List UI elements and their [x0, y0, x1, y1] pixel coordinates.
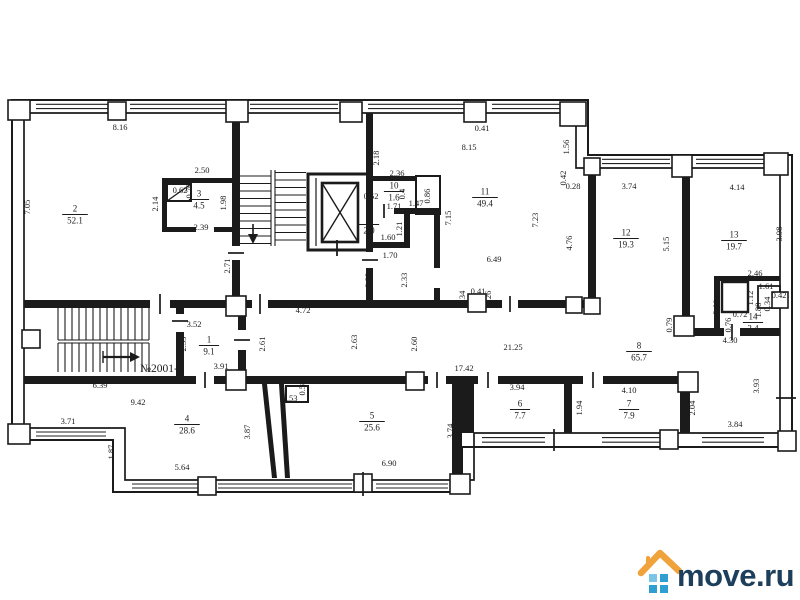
dim-label: 3.93 — [751, 379, 761, 394]
dim-label: 7.15 — [443, 211, 453, 226]
room-area: 19.3 — [618, 240, 634, 250]
room-number: 4 — [185, 414, 190, 424]
dim-label: 9.42 — [131, 397, 146, 407]
dim-label: 4.72 — [296, 305, 311, 315]
room-number: 11 — [481, 187, 490, 197]
dim-label: 4.76 — [564, 236, 574, 251]
dim-label: 2.63 — [349, 335, 359, 350]
dim-label: 2.14 — [150, 196, 160, 212]
dim-label: 0.76 — [723, 318, 733, 333]
floor-plan-page: №2001-2 19.1252.134.5428.6525.667.777.98… — [0, 0, 800, 600]
dim-label: 0.70 — [184, 184, 194, 199]
unit-number-label: №2001-2 — [140, 363, 184, 375]
room-number: 6 — [518, 399, 523, 409]
room-number: 8 — [637, 341, 642, 351]
dim-label: 0.41 — [475, 123, 490, 133]
dim-label: 21.25 — [503, 342, 522, 352]
dim-label: 1.21 — [394, 222, 404, 237]
room-area: 28.6 — [179, 426, 195, 436]
dim-label: 3.71 — [61, 416, 76, 426]
room-number: 5 — [370, 411, 375, 421]
room-area: 19.7 — [726, 242, 742, 252]
dim-label: 1.87 — [106, 445, 116, 460]
room-area: 49.4 — [477, 199, 493, 209]
dim-label: 8.16 — [113, 122, 128, 132]
dim-label: 0.28 — [566, 181, 581, 191]
dim-label: 1.98 — [218, 196, 228, 211]
dim-label: 4.10 — [622, 385, 637, 395]
dim-label: 6.39 — [93, 380, 108, 390]
dim-label: 3.87 — [242, 425, 252, 440]
dim-label: 7.23 — [530, 213, 540, 228]
room-area: 7.7 — [514, 411, 526, 421]
dim-label: 6.49 — [487, 254, 502, 264]
dim-label: 3.84 — [728, 419, 744, 429]
dim-label: 1.60 — [381, 232, 396, 242]
dim-label: 8.15 — [462, 142, 477, 152]
room-area: 65.7 — [631, 353, 647, 363]
dim-label: 5.64 — [175, 462, 191, 472]
dim-label: 0.58 — [297, 381, 307, 396]
dim-label: 2.32 — [363, 273, 373, 288]
room-area: 4.5 — [193, 201, 205, 211]
room-number: 2 — [73, 204, 78, 214]
dim-label: 3.98 — [774, 227, 784, 242]
dim-label: 0.53 — [283, 393, 298, 403]
room-area: 25.6 — [364, 423, 380, 433]
dim-label: 17.42 — [454, 363, 473, 373]
dim-label: 0.72 — [733, 309, 748, 319]
dim-label: 2.60 — [409, 337, 419, 352]
dim-label: 1.71 — [387, 201, 402, 211]
dim-label: 2.18 — [371, 151, 381, 166]
dim-label: 0.86 — [422, 189, 432, 204]
dim-label: 1.56 — [561, 140, 571, 155]
room-number: 1 — [207, 335, 212, 345]
dim-label: 2.04 — [687, 400, 697, 416]
dim-label: 2.53 — [178, 337, 188, 352]
room-number: 12 — [622, 228, 631, 238]
room-area: 7.9 — [623, 411, 635, 421]
dim-label: 1.70 — [383, 250, 398, 260]
dim-label: 2.00 — [711, 300, 721, 315]
room-area: 52.1 — [67, 216, 83, 226]
dim-label: 2.39 — [194, 222, 209, 232]
dim-label: 2.33 — [399, 273, 409, 288]
dim-label: 2.50 — [195, 165, 210, 175]
dim-label: 4.30 — [723, 335, 738, 345]
dim-label: 3.74 — [445, 423, 455, 439]
dim-label: 5.15 — [661, 237, 671, 252]
dim-label: 1.96 — [462, 399, 472, 414]
dim-label: 2.36 — [390, 168, 405, 178]
room-area: 2.0 — [363, 226, 375, 236]
dim-label: 6.90 — [382, 458, 397, 468]
dim-label: 3.74 — [622, 181, 638, 191]
dim-label: 0.34 — [762, 296, 772, 312]
dim-label: 2.46 — [748, 268, 763, 278]
dim-label: 0.34 — [457, 290, 467, 306]
room-area: 9.1 — [203, 347, 214, 357]
dim-label: 0.4 — [397, 188, 407, 199]
room-area: 3.4 — [747, 324, 759, 334]
dim-label: 0.52 — [364, 191, 379, 201]
dim-label: 3.52 — [187, 319, 202, 329]
watermark-text: move.ru — [677, 558, 794, 593]
dim-label: 0.26 — [483, 291, 493, 306]
dim-label: 4.14 — [730, 182, 746, 192]
dim-label: 0.79 — [664, 318, 674, 333]
dim-label: 2.61 — [257, 337, 267, 352]
dim-label: 0.42 — [772, 290, 787, 300]
room-number: 13 — [730, 230, 740, 240]
floor-plan: №2001-2 19.1252.134.5428.6525.667.777.98… — [0, 0, 800, 600]
room-number: 7 — [627, 399, 632, 409]
dim-label: 7.05 — [22, 200, 32, 215]
room-number: 9 — [367, 214, 372, 224]
room-number: 3 — [197, 189, 202, 199]
dim-label: 3.91 — [214, 361, 229, 371]
dim-label: 3.94 — [510, 382, 526, 392]
dim-label: 2.71 — [222, 259, 232, 274]
dim-label: 1.94 — [574, 400, 584, 416]
